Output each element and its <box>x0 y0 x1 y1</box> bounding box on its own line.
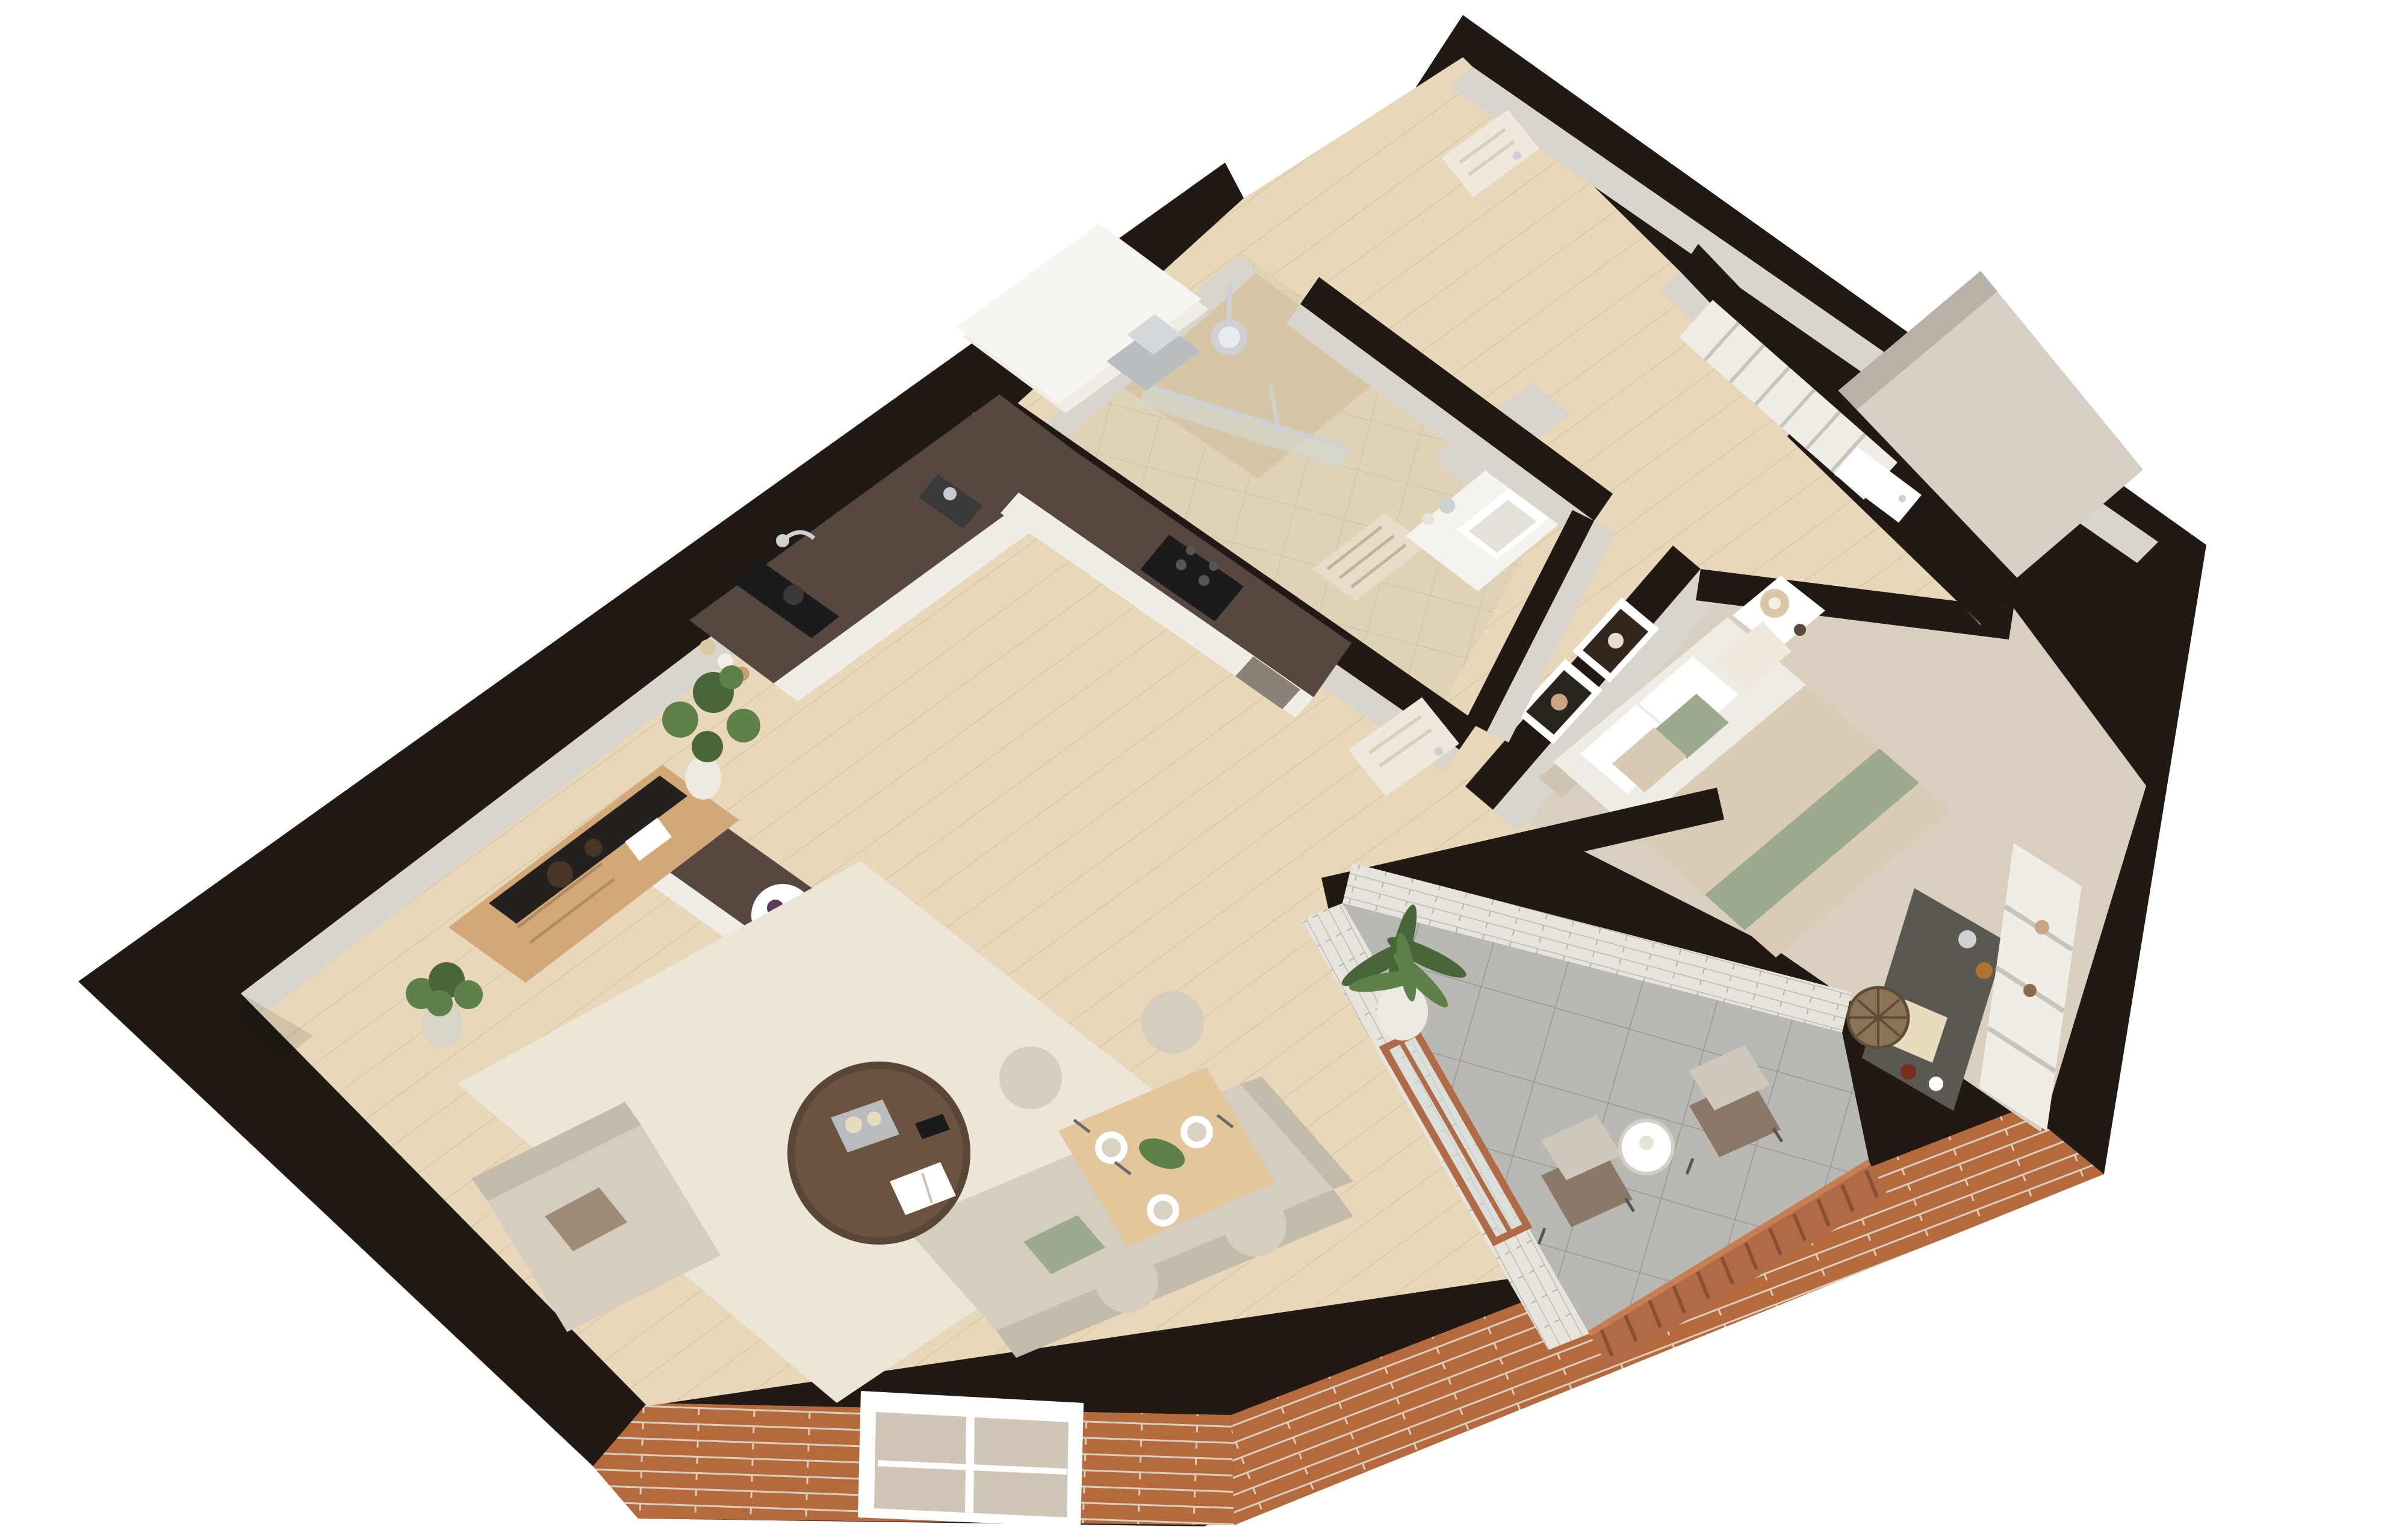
decor-bowl-1 <box>547 861 573 888</box>
dining-chair-1 <box>999 1047 1062 1109</box>
decor-bowl-2 <box>585 839 603 857</box>
coffee-table <box>787 1062 970 1245</box>
rain-shower-head-inner <box>1218 326 1240 348</box>
spice-jar-1 <box>700 639 715 655</box>
dining-chair-3 <box>1096 1250 1158 1313</box>
dining-chair-2 <box>1141 991 1204 1054</box>
coffee-cup <box>1639 1136 1654 1150</box>
vanity-faucet <box>1439 498 1455 514</box>
desk-jar <box>1976 962 1993 979</box>
shelf-decor-1 <box>2035 920 2049 935</box>
entry-door-handle <box>1513 151 1521 160</box>
dining-chair-4 <box>1224 1194 1286 1257</box>
floor-plan-svg <box>0 0 2408 1527</box>
rattan-stool <box>1848 987 1908 1048</box>
candle-2 <box>867 1112 881 1126</box>
shelf-decor-2 <box>2023 984 2037 997</box>
candle-1 <box>845 1116 862 1133</box>
bathroom-door-handle <box>1435 747 1443 756</box>
desk-mug <box>1901 1064 1916 1080</box>
soap-jar <box>1422 513 1434 525</box>
closet-door-handle <box>1899 495 1906 502</box>
balcony-side-table <box>1620 1121 1673 1174</box>
facade-window <box>858 1391 1084 1527</box>
nightstand-book <box>1794 624 1806 636</box>
desk-cup-1 <box>1958 930 1976 948</box>
floor-plan-stage <box>0 0 2408 1527</box>
desk-box <box>1929 1077 1943 1091</box>
